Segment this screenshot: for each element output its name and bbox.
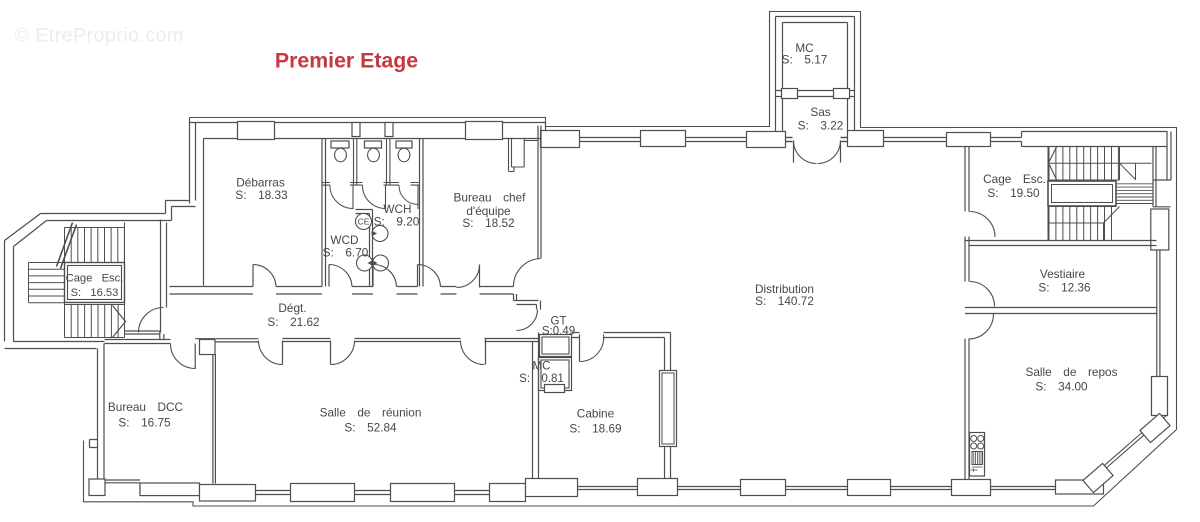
svg-text:CE: CE <box>358 217 370 227</box>
svg-text:S: 19.50: S: 19.50 <box>987 186 1040 200</box>
svg-text:Vestiaire: Vestiaire <box>1040 267 1086 281</box>
svg-text:© EtreProprio.com: © EtreProprio.com <box>15 25 184 47</box>
svg-text:S: 140.72: S: 140.72 <box>755 294 814 308</box>
svg-text:Cage Esc.: Cage Esc. <box>66 273 124 285</box>
svg-text:S: 5.17: S: 5.17 <box>782 53 828 67</box>
svg-text:S: 34.00: S: 34.00 <box>1035 380 1088 394</box>
svg-text:Salle de repos: Salle de repos <box>1026 365 1118 379</box>
svg-text:Bureau chef: Bureau chef <box>454 191 527 205</box>
svg-text:Dégt.: Dégt. <box>278 301 306 315</box>
svg-text:S: 18.33: S: 18.33 <box>235 188 288 202</box>
svg-text:Cabine: Cabine <box>577 407 615 421</box>
svg-text:S: 16.53: S: 16.53 <box>71 287 119 299</box>
svg-text:S: 9.20: S: 9.20 <box>374 215 420 229</box>
svg-text:Premier Etage: Premier Etage <box>275 49 418 73</box>
svg-text:S: 0.81: S: 0.81 <box>519 373 564 385</box>
svg-text:S: 16.75: S: 16.75 <box>118 416 171 430</box>
svg-text:Bureau DCC: Bureau DCC <box>108 400 184 414</box>
svg-text:Salle de réunion: Salle de réunion <box>320 406 422 420</box>
svg-text:S: 18.52: S: 18.52 <box>462 216 514 230</box>
svg-text:S: 12.36: S: 12.36 <box>1038 281 1091 295</box>
svg-text:Sas: Sas <box>810 105 830 119</box>
svg-text:Cage Esc.: Cage Esc. <box>983 172 1046 186</box>
svg-text:S: 18.69: S: 18.69 <box>569 422 621 436</box>
svg-text:S: 52.84: S: 52.84 <box>344 421 397 435</box>
svg-text:MC: MC <box>533 361 551 373</box>
svg-text:S: 21.62: S: 21.62 <box>267 315 319 329</box>
svg-text:S: 3.22: S: 3.22 <box>798 119 844 133</box>
svg-text:S:0.49: S:0.49 <box>542 326 575 338</box>
svg-text:S: 6.70: S: 6.70 <box>323 246 369 260</box>
